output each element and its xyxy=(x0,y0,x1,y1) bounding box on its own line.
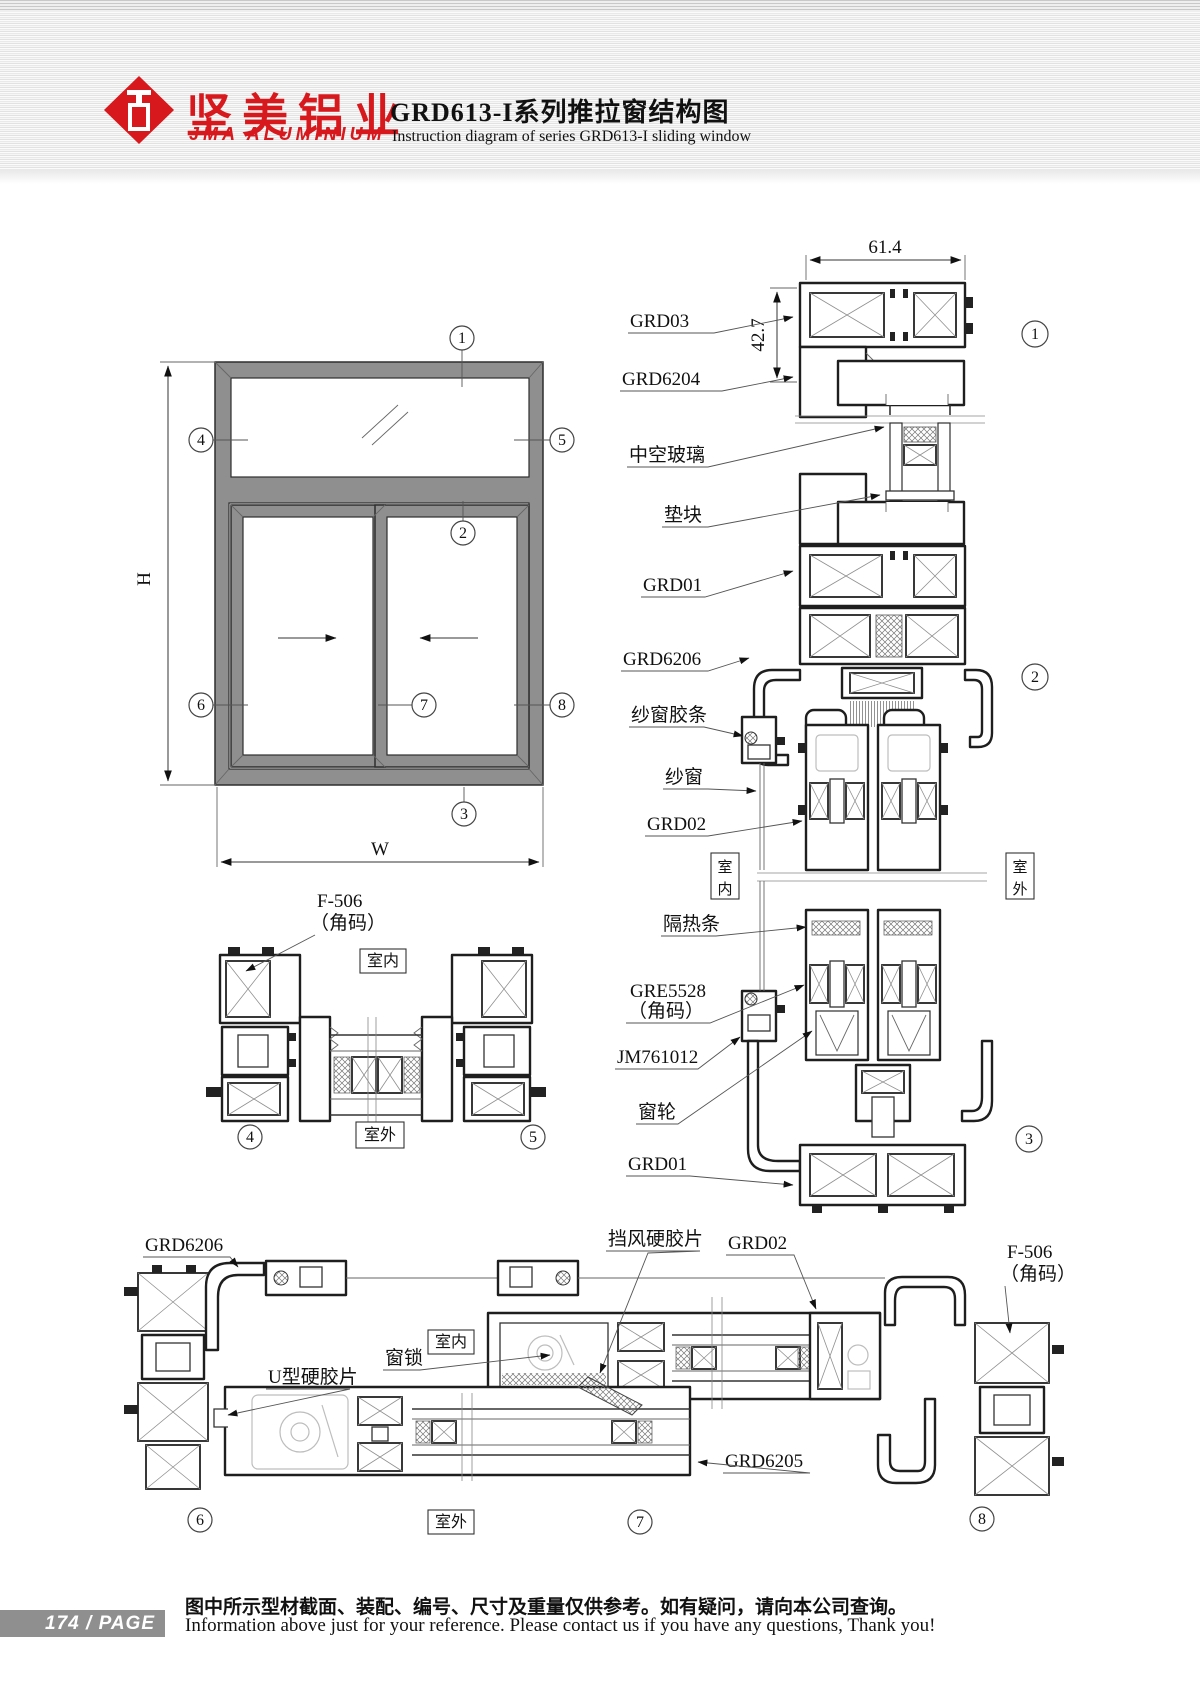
indoor-marker-45: 室内 xyxy=(360,949,406,973)
horizontal-section-4-5: F-506 （角码） 室内 室外 4 5 xyxy=(206,891,546,1149)
balloon-1-section: 1 xyxy=(1022,321,1048,347)
svg-text:内: 内 xyxy=(717,881,732,898)
svg-text:JM761012: JM761012 xyxy=(617,1047,698,1068)
svg-text:室内: 室内 xyxy=(367,952,399,970)
label-grd6205: GRD6205 xyxy=(698,1451,810,1473)
svg-text:4: 4 xyxy=(197,432,205,449)
label-roller: 窗轮 xyxy=(636,1031,812,1124)
svg-text:F-506: F-506 xyxy=(1007,1242,1052,1263)
svg-text:室内: 室内 xyxy=(435,1333,467,1351)
height-dimension: H xyxy=(134,362,215,785)
svg-text:外: 外 xyxy=(1012,881,1027,898)
label-jm761012: JM761012 xyxy=(615,1037,740,1069)
page-separator: / xyxy=(86,1613,92,1634)
balloon-3-section: 3 xyxy=(1016,1126,1042,1152)
balloon-2-section: 2 xyxy=(1022,664,1048,690)
indoor-marker-bottom: 室内 xyxy=(428,1330,474,1354)
section-1-head xyxy=(800,283,973,417)
svg-text:室外: 室外 xyxy=(364,1126,396,1144)
svg-text:窗轮: 窗轮 xyxy=(638,1101,676,1123)
svg-text:7: 7 xyxy=(636,1514,644,1531)
svg-text:纱窗胶条: 纱窗胶条 xyxy=(631,704,707,726)
page-header: 坚美铝业 JMA ALUMINIUM GRD613-I系列推拉窗结构图 Inst… xyxy=(0,0,1200,170)
balloon-5-section: 5 xyxy=(521,1125,545,1149)
svg-text:2: 2 xyxy=(1031,669,1039,686)
width-dimension: W xyxy=(217,787,543,867)
balloon-6-section: 6 xyxy=(188,1508,212,1532)
label-grd01-upper: GRD01 xyxy=(641,571,793,597)
outdoor-marker-45: 室外 xyxy=(356,1122,404,1148)
page-number: 174 xyxy=(45,1613,80,1634)
label-gre5528: GRE5528 （角码） xyxy=(626,981,804,1023)
svg-text:U型硬胶片: U型硬胶片 xyxy=(268,1366,358,1388)
svg-text:GRD01: GRD01 xyxy=(628,1154,687,1175)
svg-text:61.4: 61.4 xyxy=(868,237,902,258)
outdoor-marker-bottom: 室外 xyxy=(428,1510,474,1534)
svg-text:H: H xyxy=(134,572,155,586)
page-number-badge: 174 / PAGE xyxy=(0,1610,165,1637)
svg-text:GRD6204: GRD6204 xyxy=(622,369,701,390)
label-screen-gasket: 纱窗胶条 xyxy=(629,704,743,736)
svg-text:1: 1 xyxy=(458,330,466,347)
svg-text:（角码）: （角码） xyxy=(628,1000,704,1022)
svg-text:3: 3 xyxy=(460,806,468,823)
vertical-section: 61.4 42.7 xyxy=(615,237,1048,1213)
svg-text:5: 5 xyxy=(558,432,566,449)
svg-text:窗锁: 窗锁 xyxy=(385,1347,423,1369)
break-lines-middle xyxy=(757,873,987,881)
section-1-glass-and-transom xyxy=(800,423,965,664)
svg-text:6: 6 xyxy=(196,1512,204,1529)
svg-text:6: 6 xyxy=(197,697,205,714)
page-label: PAGE xyxy=(99,1613,155,1634)
svg-text:4: 4 xyxy=(246,1129,254,1146)
svg-text:隔热条: 隔热条 xyxy=(663,913,720,935)
label-insulating-glass: 中空玻璃 xyxy=(627,427,884,467)
section-2-interlock xyxy=(742,668,992,870)
svg-text:室外: 室外 xyxy=(435,1513,467,1531)
label-grd6206-bottom: GRD6206 xyxy=(143,1235,238,1267)
svg-text:（角码）: （角码） xyxy=(310,912,386,934)
svg-text:GRD6206: GRD6206 xyxy=(145,1235,223,1256)
svg-text:室: 室 xyxy=(1012,859,1027,876)
svg-text:纱窗: 纱窗 xyxy=(665,766,703,788)
page-title: GRD613-I系列推拉窗结构图 xyxy=(390,92,730,129)
outdoor-marker-vertical: 室 外 xyxy=(1006,853,1034,899)
svg-text:2: 2 xyxy=(459,525,467,542)
balloon-8-elevation: 8 xyxy=(550,693,574,717)
svg-text:GRD02: GRD02 xyxy=(728,1233,787,1254)
section-3-sill xyxy=(742,881,992,1213)
window-elevation: H W 1 4 5 2 6 7 8 3 xyxy=(134,326,574,867)
svg-text:42.7: 42.7 xyxy=(748,318,769,351)
svg-text:7: 7 xyxy=(420,697,428,714)
svg-text:GRD01: GRD01 xyxy=(643,575,702,596)
page-subtitle: Instruction diagram of series GRD613-I s… xyxy=(392,128,751,146)
balloon-2-elevation: 2 xyxy=(451,521,475,545)
svg-text:GRD02: GRD02 xyxy=(647,814,706,835)
svg-text:中空玻璃: 中空玻璃 xyxy=(629,444,705,466)
svg-text:3: 3 xyxy=(1025,1131,1033,1148)
balloon-4-section: 4 xyxy=(238,1125,262,1149)
svg-text:（角码）: （角码） xyxy=(1000,1263,1076,1285)
balloon-3-elevation: 3 xyxy=(452,802,476,826)
balloon-1-elevation: 1 xyxy=(450,326,474,350)
balloon-7-section: 7 xyxy=(628,1510,652,1534)
label-grd6206-section: GRD6206 xyxy=(621,649,749,671)
indoor-marker-vertical: 室 内 xyxy=(711,853,739,899)
dim-42-7: 42.7 xyxy=(748,288,797,382)
logo-english: JMA ALUMINIUM xyxy=(189,124,386,145)
svg-text:GRD6206: GRD6206 xyxy=(623,649,701,670)
svg-text:F-506: F-506 xyxy=(317,891,362,912)
technical-drawing: H W 1 4 5 2 6 7 8 3 xyxy=(0,165,1200,1590)
svg-text:室: 室 xyxy=(717,859,732,876)
balloon-7-elevation: 7 xyxy=(412,693,436,717)
label-grd02-section: GRD02 xyxy=(645,814,802,836)
balloon-6-elevation: 6 xyxy=(189,693,213,717)
svg-text:W: W xyxy=(371,839,389,860)
label-f506-bottom: F-506 （角码） xyxy=(1000,1242,1076,1333)
svg-text:5: 5 xyxy=(529,1129,537,1146)
balloon-4-elevation: 4 xyxy=(189,428,213,452)
balloon-5-elevation: 5 xyxy=(550,428,574,452)
catalog-page: 坚美铝业 JMA ALUMINIUM GRD613-I系列推拉窗结构图 Inst… xyxy=(0,0,1200,1697)
label-screen: 纱窗 xyxy=(663,766,756,791)
svg-text:垫块: 垫块 xyxy=(664,504,702,526)
dim-61-4: 61.4 xyxy=(806,237,965,280)
horizontal-section-6-7-8: GRD6206 U型硬胶片 窗锁 挡风硬胶片 GRD02 F-506 （角 xyxy=(124,1228,1076,1534)
label-grd6204: GRD6204 xyxy=(620,369,793,391)
svg-text:8: 8 xyxy=(558,697,566,714)
label-grd02-bottom: GRD02 xyxy=(726,1233,816,1309)
svg-text:GRE5528: GRE5528 xyxy=(630,981,706,1002)
svg-text:挡风硬胶片: 挡风硬胶片 xyxy=(608,1228,703,1250)
balloon-8-section: 8 xyxy=(970,1507,994,1531)
svg-text:1: 1 xyxy=(1031,326,1039,343)
svg-text:GRD03: GRD03 xyxy=(630,311,689,332)
footer-note-en: Information above just for your referenc… xyxy=(185,1615,1105,1637)
svg-text:8: 8 xyxy=(978,1511,986,1528)
label-thermal-break: 隔热条 xyxy=(661,913,806,936)
